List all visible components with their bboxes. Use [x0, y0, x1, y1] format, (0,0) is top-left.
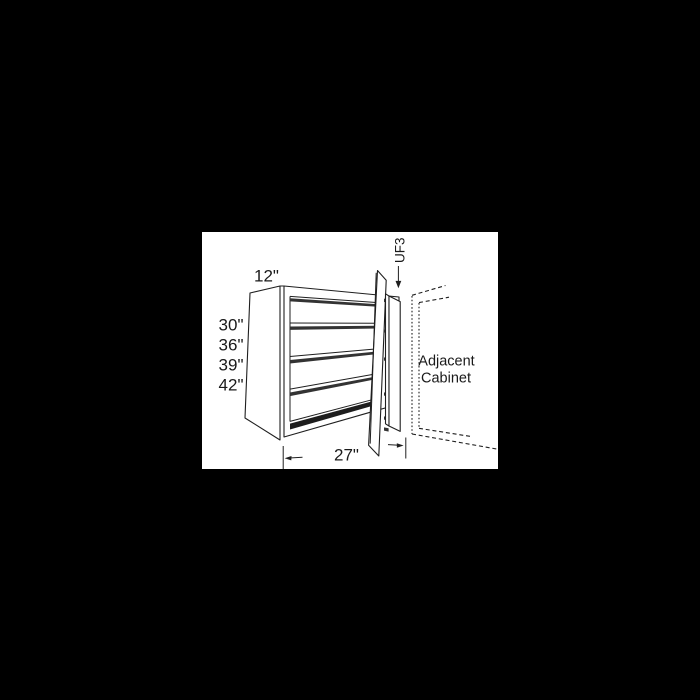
adjacent-cabinet-label: Adjacent Cabinet — [418, 354, 474, 387]
width-dimension: 27" — [283, 438, 406, 470]
cabinet-diagram: 27" 12" 30" 36" 39" 42" UF3 Adjacent Cab… — [202, 232, 498, 469]
height-labels: 30" 36" 39" 42" — [219, 316, 244, 395]
cabinet-side-panel — [245, 286, 284, 440]
filler-label: UF3 — [393, 237, 408, 263]
width-label: 27" — [334, 446, 359, 465]
down-arrow-icon — [396, 281, 402, 288]
adjacent-label-line2: Cabinet — [421, 371, 471, 387]
adjacent-label-line1: Adjacent — [418, 354, 474, 370]
height-label-39: 39" — [219, 356, 244, 375]
height-label-30: 30" — [219, 316, 244, 335]
depth-label: 12" — [254, 267, 279, 286]
height-label-42: 42" — [219, 376, 244, 395]
filler-strip — [386, 294, 401, 432]
height-label-36: 36" — [219, 336, 244, 355]
drawing-paper: 27" 12" 30" 36" 39" 42" UF3 Adjacent Cab… — [202, 232, 498, 469]
filler-callout: UF3 — [393, 237, 408, 288]
canvas-background: 27" 12" 30" 36" 39" 42" UF3 Adjacent Cab… — [0, 0, 700, 700]
